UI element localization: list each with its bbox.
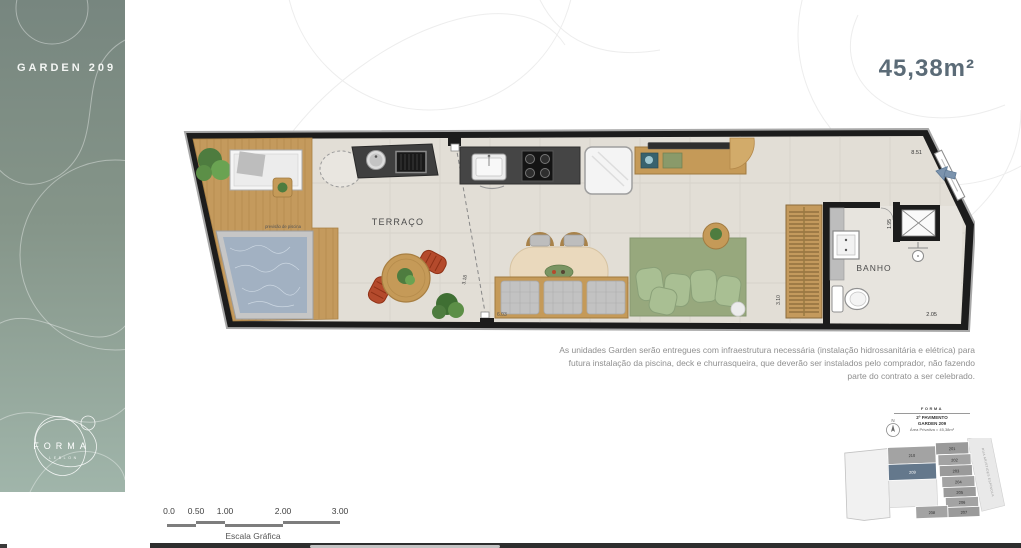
logo-primary-text: FORMA <box>33 441 91 451</box>
scale-segment <box>167 524 196 527</box>
scale-tick-2: 1.00 <box>217 506 234 516</box>
key-plan: FORMA 2º PAVIMENTO GARDEN 209 Área Priva… <box>843 406 1021 538</box>
dim-closet-depth: 3.10 <box>776 295 782 305</box>
scale-segment <box>196 521 225 524</box>
logo-secondary-text: LEBLON <box>49 456 79 460</box>
compass-icon: N <box>885 417 901 439</box>
unit-area-value: 45,38m² <box>860 55 975 83</box>
floor-plan: previsão de piscina TERRAÇO <box>180 128 975 333</box>
bathroom <box>823 202 963 325</box>
key-plan-area-label: Área Privativa = 45,38m² <box>843 427 1021 433</box>
unit-number-207: 207 <box>960 510 968 515</box>
dim-top-width: 8.51 <box>911 150 922 156</box>
bbq-counter <box>352 144 438 178</box>
toilet <box>832 286 869 312</box>
scale-tick-0: 0.0 <box>163 506 175 516</box>
scale-segment <box>283 521 340 524</box>
tv-console <box>635 143 746 175</box>
unit-number-203: 203 <box>952 468 960 473</box>
bathroom-label: BANHO <box>856 263 891 273</box>
key-plan-header: FORMA 2º PAVIMENTO GARDEN 209 Área Priva… <box>843 406 1021 433</box>
compass-n-label: N <box>891 418 894 423</box>
dim-bath-width: 2.05 <box>926 312 937 318</box>
corner-mark <box>0 544 7 548</box>
refrigerator <box>585 147 632 194</box>
unit-number-202: 202 <box>951 457 959 462</box>
deck-side-table <box>273 178 292 197</box>
key-plan-brand: FORMA <box>843 406 1021 411</box>
terrace-label: TERRAÇO <box>372 217 424 227</box>
key-plan-rule <box>894 413 970 414</box>
unit-number-204: 204 <box>955 479 963 484</box>
tv <box>648 143 740 150</box>
scale-bar: 0.0 0.50 1.00 2.00 3.00 Escala Gráfica <box>163 506 348 546</box>
sidebar-unit-title: GARDEN 209 <box>17 62 116 74</box>
scale-tick-3: 2.00 <box>275 506 292 516</box>
dim-living-width: 6.03 <box>497 312 507 318</box>
scale-tick-1: 0.50 <box>188 506 205 516</box>
dim-entry-depth: 1.95 <box>887 219 893 229</box>
scale-bar-label: Escala Gráfica <box>163 531 343 541</box>
keyplan-corridor <box>889 478 938 508</box>
disclaimer-text: As unidades Garden serão entregues com i… <box>555 344 975 382</box>
unit-number-205: 205 <box>956 490 964 495</box>
sidebar: GARDEN 209 FORMA LEBLON <box>0 0 125 492</box>
brand-logo: FORMA LEBLON <box>12 408 112 480</box>
keyplan-garden-area <box>845 449 890 521</box>
unit-number-210: 210 <box>908 453 916 458</box>
pool-note-label: previsão de piscina <box>265 224 302 229</box>
unit-number-206: 206 <box>959 500 967 505</box>
bottom-page-strip <box>150 543 1021 548</box>
wardrobe <box>786 205 822 318</box>
unit-number-209: 209 <box>909 470 917 475</box>
kitchen-counter <box>460 147 580 189</box>
unit-number-201: 201 <box>949 446 957 451</box>
unit-number-208: 208 <box>928 510 936 515</box>
key-plan-building: RUA ARISTIDES ESPÍNOLA 201 202 203 204 <box>843 438 1021 536</box>
scale-segment <box>225 524 283 527</box>
scale-tick-4: 3.00 <box>332 506 349 516</box>
